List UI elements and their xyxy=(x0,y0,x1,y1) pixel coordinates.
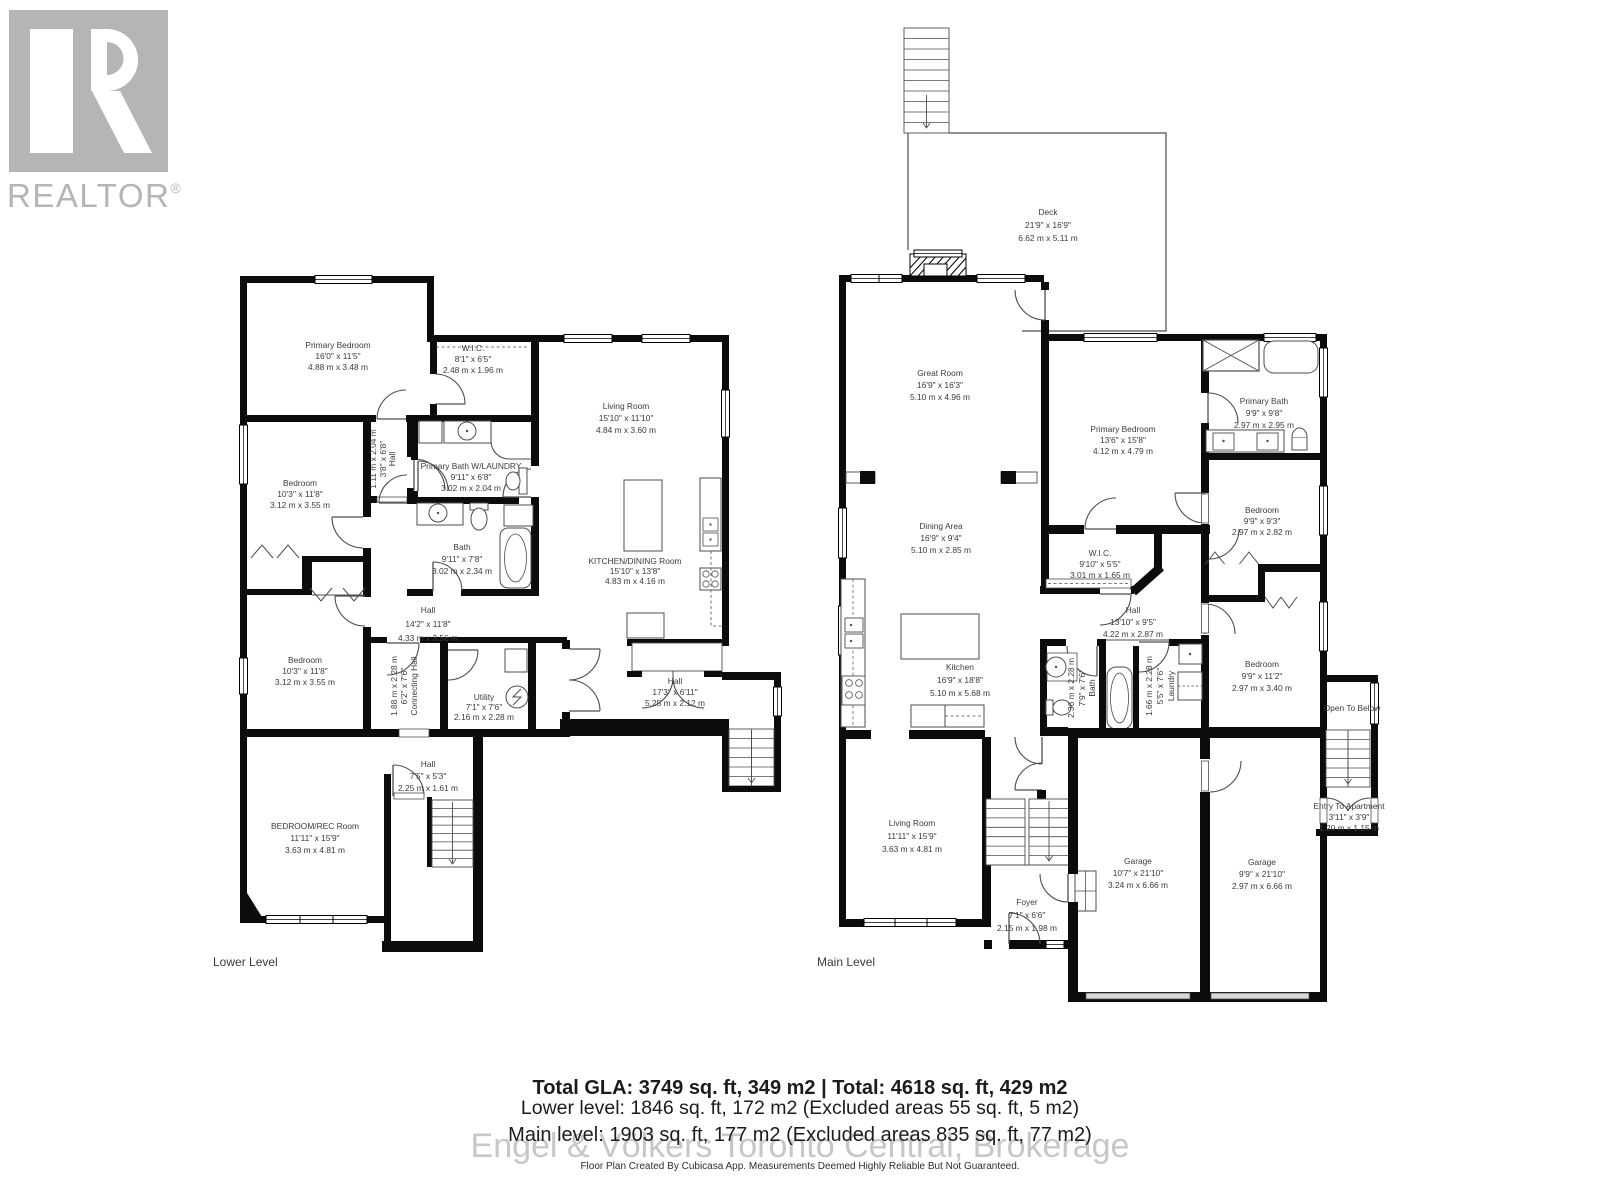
svg-text:16'9" x 16'3": 16'9" x 16'3" xyxy=(917,380,963,390)
svg-text:Connecting Hall: Connecting Hall xyxy=(409,656,419,715)
svg-text:Hall: Hall xyxy=(421,605,436,615)
svg-text:Bedroom: Bedroom xyxy=(1245,505,1279,515)
svg-text:7'5" x 5'3": 7'5" x 5'3" xyxy=(410,771,447,781)
svg-text:Hall: Hall xyxy=(387,452,397,467)
svg-text:Main Level: Main Level xyxy=(817,955,875,969)
svg-text:Foyer: Foyer xyxy=(1016,897,1038,907)
svg-text:Kitchen: Kitchen xyxy=(946,662,974,672)
svg-text:17'3" x 6'11": 17'3" x 6'11" xyxy=(652,687,697,697)
svg-text:21'9" x 16'9": 21'9" x 16'9" xyxy=(1025,220,1071,230)
svg-text:W.I.C.: W.I.C. xyxy=(1089,548,1112,558)
svg-text:2.15 m x 1.98 m: 2.15 m x 1.98 m xyxy=(997,923,1057,933)
svg-text:7'1" x 6'6": 7'1" x 6'6" xyxy=(1009,910,1046,920)
svg-text:Great Room: Great Room xyxy=(917,368,963,378)
svg-text:9'9" x 11'2": 9'9" x 11'2" xyxy=(1242,671,1283,681)
svg-text:Garage: Garage xyxy=(1248,857,1276,867)
svg-text:6.62 m x 5.11 m: 6.62 m x 5.11 m xyxy=(1018,233,1077,243)
svg-text:9'11" x 7'8": 9'11" x 7'8" xyxy=(442,554,483,564)
svg-text:Primary Bedroom: Primary Bedroom xyxy=(1090,424,1155,434)
svg-text:3.63 m x 4.81 m: 3.63 m x 4.81 m xyxy=(882,844,942,854)
svg-text:5.10 m x 2.85 m: 5.10 m x 2.85 m xyxy=(911,545,971,555)
svg-text:3.24 m x 6.66 m: 3.24 m x 6.66 m xyxy=(1108,880,1168,890)
svg-text:16'0" x 11'5": 16'0" x 11'5" xyxy=(315,351,360,361)
svg-text:7'1" x 7'6": 7'1" x 7'6" xyxy=(466,702,503,712)
svg-text:1.88 m x 2.28 m: 1.88 m x 2.28 m xyxy=(389,656,399,716)
svg-text:Living Room: Living Room xyxy=(889,818,936,828)
svg-text:REALTOR®: REALTOR® xyxy=(7,177,182,214)
svg-text:2.97 m x 2.95 m: 2.97 m x 2.95 m xyxy=(1234,420,1294,430)
svg-text:2.97 m x 3.40 m: 2.97 m x 3.40 m xyxy=(1232,683,1292,693)
svg-text:10'7" x 21'10": 10'7" x 21'10" xyxy=(1113,868,1164,878)
svg-text:3'11" x 3'9": 3'11" x 3'9" xyxy=(1329,812,1370,822)
svg-text:BEDROOM/REC Room: BEDROOM/REC Room xyxy=(271,821,359,831)
svg-text:Bath: Bath xyxy=(1087,679,1097,697)
svg-text:15'10" x 11'10": 15'10" x 11'10" xyxy=(599,413,654,423)
svg-text:5.10 m x 5.68 m: 5.10 m x 5.68 m xyxy=(930,688,990,698)
svg-text:Hall: Hall xyxy=(668,676,683,686)
svg-text:15'10" x 13'8": 15'10" x 13'8" xyxy=(610,566,661,576)
svg-text:4.88 m x 3.48 m: 4.88 m x 3.48 m xyxy=(308,362,368,372)
svg-text:Primary Bath: Primary Bath xyxy=(1240,396,1289,406)
svg-text:Bath: Bath xyxy=(453,542,471,552)
svg-text:9'9" x 21'10": 9'9" x 21'10" xyxy=(1239,869,1285,879)
svg-text:5.25 m x 2.12 m: 5.25 m x 2.12 m xyxy=(645,698,705,708)
svg-text:3.02 m x 2.04 m: 3.02 m x 2.04 m xyxy=(441,483,501,493)
svg-text:Hall: Hall xyxy=(1126,605,1141,615)
svg-text:16'9" x 9'4": 16'9" x 9'4" xyxy=(920,533,961,543)
svg-text:Deck: Deck xyxy=(1038,207,1058,217)
svg-text:Primary Bath W/LAUNDRY: Primary Bath W/LAUNDRY xyxy=(421,461,522,471)
svg-text:4.22 m x 2.87 m: 4.22 m x 2.87 m xyxy=(1103,629,1163,639)
svg-text:Living Room: Living Room xyxy=(603,401,650,411)
svg-text:Dining Area: Dining Area xyxy=(919,521,963,531)
svg-text:11'11" x 15'9": 11'11" x 15'9" xyxy=(887,831,936,841)
svg-text:14'2" x 11'8": 14'2" x 11'8" xyxy=(405,619,450,629)
svg-text:1.20 m x 1.15 m: 1.20 m x 1.15 m xyxy=(1319,823,1379,833)
svg-text:Primary Bedroom: Primary Bedroom xyxy=(305,340,370,350)
svg-text:4.84 m x 3.60 m: 4.84 m x 3.60 m xyxy=(596,425,656,435)
svg-text:8'1" x 6'5": 8'1" x 6'5" xyxy=(455,354,492,364)
svg-text:4.33 m x 3.56 m: 4.33 m x 3.56 m xyxy=(398,633,458,643)
svg-text:3.63 m x 4.81 m: 3.63 m x 4.81 m xyxy=(285,845,345,855)
svg-text:Lower Level: Lower Level xyxy=(213,955,278,969)
svg-text:Open To Below: Open To Below xyxy=(1324,703,1382,713)
svg-text:16'9" x 18'8": 16'9" x 18'8" xyxy=(937,675,983,685)
svg-text:6'2" x 7'6": 6'2" x 7'6" xyxy=(399,668,409,705)
svg-text:9'9" x 9'8": 9'9" x 9'8" xyxy=(1246,408,1283,418)
svg-text:2.97 m x 6.66 m: 2.97 m x 6.66 m xyxy=(1232,881,1292,891)
svg-text:9'11" x 6'8": 9'11" x 6'8" xyxy=(451,472,492,482)
svg-text:Hall: Hall xyxy=(421,759,436,769)
svg-text:KITCHEN/DINING Room: KITCHEN/DINING Room xyxy=(588,556,681,566)
svg-text:13'6" x 15'8": 13'6" x 15'8" xyxy=(1100,435,1146,445)
svg-text:Bedroom: Bedroom xyxy=(283,478,317,488)
svg-text:W.I.C.: W.I.C. xyxy=(462,343,485,353)
svg-text:3.01 m x 1.65 m: 3.01 m x 1.65 m xyxy=(1070,570,1130,580)
svg-text:4.12 m x 4.79 m: 4.12 m x 4.79 m xyxy=(1093,446,1153,456)
svg-text:Utility: Utility xyxy=(474,692,495,702)
svg-text:7'9" x 7'6": 7'9" x 7'6" xyxy=(1077,670,1087,707)
svg-text:4.83 m x 4.16 m: 4.83 m x 4.16 m xyxy=(605,576,665,586)
svg-text:5'5" x 7'6": 5'5" x 7'6" xyxy=(1155,668,1165,705)
svg-text:10'3'' x 11'8": 10'3'' x 11'8" xyxy=(277,489,323,499)
svg-text:1.11 m x 2.04 m: 1.11 m x 2.04 m xyxy=(368,429,378,488)
svg-text:Laundry: Laundry xyxy=(1166,670,1176,701)
svg-text:2.16 m x 2.28 m: 2.16 m x 2.28 m xyxy=(454,712,514,722)
svg-text:Bedroom: Bedroom xyxy=(288,655,322,665)
svg-text:3.12 m x 3.55 m: 3.12 m x 3.55 m xyxy=(275,677,335,687)
svg-text:2.25 m x 1.61 m: 2.25 m x 1.61 m xyxy=(398,783,458,793)
svg-text:3.12 m x 3.55 m: 3.12 m x 3.55 m xyxy=(270,500,330,510)
svg-text:Bedroom: Bedroom xyxy=(1245,659,1279,669)
svg-text:2.48 m x 1.96 m: 2.48 m x 1.96 m xyxy=(443,365,503,375)
svg-text:Entry To Apartment: Entry To Apartment xyxy=(1313,801,1385,811)
svg-text:1.66 m x 2.28 m: 1.66 m x 2.28 m xyxy=(1144,656,1154,716)
svg-text:Garage: Garage xyxy=(1124,856,1152,866)
svg-text:13'10" x 9'5": 13'10" x 9'5" xyxy=(1110,617,1156,627)
svg-text:2.97 m x 2.82 m: 2.97 m x 2.82 m xyxy=(1232,527,1292,537)
svg-text:11'11" x 15'9": 11'11" x 15'9" xyxy=(290,833,339,843)
svg-text:5.10 m x 4.96 m: 5.10 m x 4.96 m xyxy=(910,392,970,402)
svg-text:2.36 m x 2.28 m: 2.36 m x 2.28 m xyxy=(1066,658,1076,718)
svg-text:10'3'' x 11'8": 10'3'' x 11'8" xyxy=(282,666,328,676)
svg-text:9'10" x 5'5": 9'10" x 5'5" xyxy=(1079,559,1120,569)
svg-text:9'9" x 9'3": 9'9" x 9'3" xyxy=(1244,516,1281,526)
svg-text:3.02 m x 2.34 m: 3.02 m x 2.34 m xyxy=(432,566,492,576)
